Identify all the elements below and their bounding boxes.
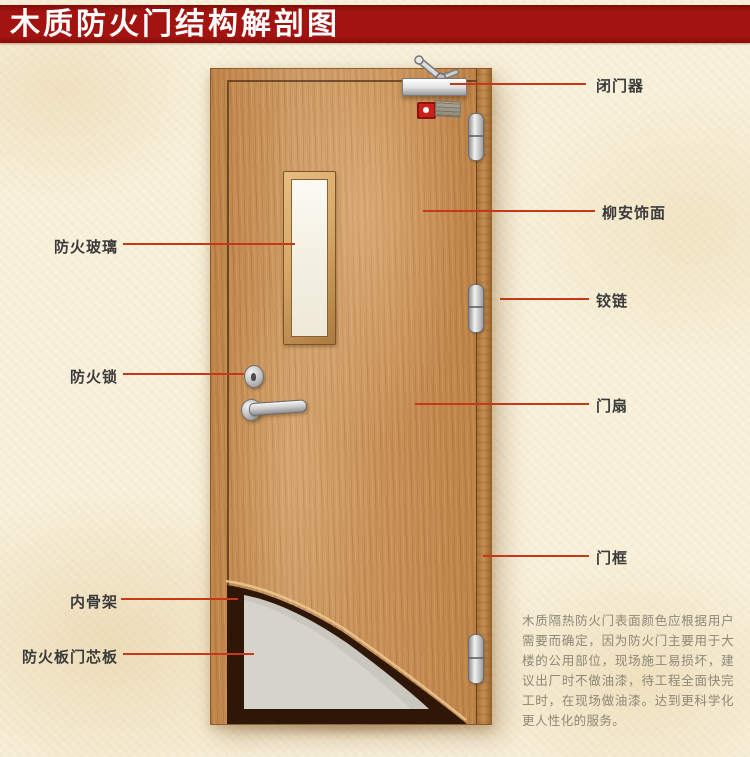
hinge-seam xyxy=(469,657,483,659)
fire-door-illustration xyxy=(210,68,492,725)
page-title: 木质防火门结构解剖图 xyxy=(0,5,750,44)
hinge-middle xyxy=(468,284,484,333)
callout-fire-lock: 防火锁 xyxy=(28,366,118,387)
leader-fire-glass xyxy=(123,243,295,245)
hinge-seam xyxy=(469,306,483,308)
callout-hinge: 铰链 xyxy=(596,290,628,311)
title-banner: 木质防火门结构解剖图 xyxy=(0,5,750,43)
poster: 木质防火门结构解剖图 xyxy=(0,0,750,757)
hinge-top xyxy=(468,113,484,161)
callout-fire-board-core: 防火板门芯板 xyxy=(16,646,118,667)
callout-door-frame: 门框 xyxy=(596,547,628,568)
door-closer-body xyxy=(402,78,467,96)
hinge-seam xyxy=(469,135,483,137)
leader-fire-board-core xyxy=(123,653,254,655)
callout-fire-glass: 防火玻璃 xyxy=(28,236,118,257)
leader-hinge xyxy=(500,298,589,300)
keyhole xyxy=(251,373,256,381)
lock-cylinder xyxy=(244,365,264,388)
door-leaf-gap-outline xyxy=(227,80,479,722)
fire-rating-sign-dot xyxy=(423,107,429,113)
callout-door-leaf: 门扇 xyxy=(596,395,628,416)
fire-rating-sign xyxy=(417,102,436,119)
callout-lauan-veneer: 柳安饰面 xyxy=(602,202,666,223)
fire-glass-window xyxy=(283,171,336,345)
leader-inner-skeleton xyxy=(121,598,238,600)
leader-lauan-veneer xyxy=(423,210,595,212)
leader-door-leaf xyxy=(415,403,589,405)
leader-door-closer xyxy=(450,83,586,85)
leader-fire-lock xyxy=(123,373,244,375)
hinge-bottom xyxy=(468,634,484,684)
callout-door-closer: 闭门器 xyxy=(596,75,644,96)
door-frame-strip xyxy=(476,69,492,724)
callout-inner-skeleton: 内骨架 xyxy=(28,591,118,612)
leader-door-frame xyxy=(483,555,589,557)
description-paragraph: 木质隔热防火门表面颜色应根据用户需要而确定，因为防火门主要用于大楼的公用部位，现… xyxy=(522,611,734,731)
certification-tag xyxy=(435,100,462,117)
fire-glass-pane xyxy=(291,179,328,337)
